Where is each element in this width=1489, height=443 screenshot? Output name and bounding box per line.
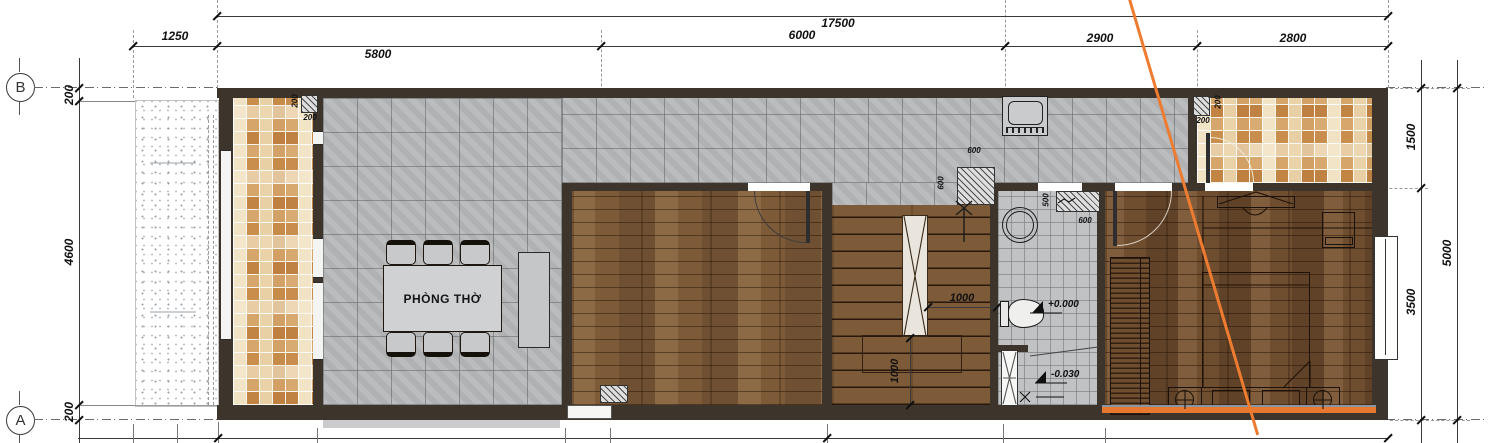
ext-line: [177, 424, 178, 443]
ext-line: [1105, 428, 1106, 443]
ext-line: [317, 428, 318, 443]
ext-line: [133, 424, 134, 443]
yard-arrows: [150, 163, 196, 312]
shower-door-cross: [1003, 352, 1016, 404]
lineart-overlay: [0, 0, 1489, 443]
ext-line: [610, 428, 611, 443]
console-peak-line: [1219, 192, 1293, 204]
ext-line: [218, 422, 219, 443]
floor-plan-canvas: B A 17500 1250 5800 6000 2900 2800 200 4…: [0, 0, 1489, 443]
floor-drain: [1020, 392, 1064, 402]
blanket-fold: [1283, 361, 1310, 388]
faucet-glyph: [1058, 198, 1075, 203]
stair-up-arrow: [956, 201, 972, 242]
console-mirror-arc: [1243, 208, 1267, 215]
leader-line: [1030, 347, 1098, 356]
bedroom2-ledge-lines: [1203, 196, 1372, 387]
ext-line: [565, 428, 566, 443]
dim-line-bottom: [78, 438, 1388, 439]
ext-line: [1003, 424, 1004, 443]
lamp-cross: [1176, 391, 1332, 409]
ext-line: [827, 424, 828, 443]
stair-stringer-cross: [904, 216, 926, 336]
level-flag-bases: [1030, 313, 1067, 383]
